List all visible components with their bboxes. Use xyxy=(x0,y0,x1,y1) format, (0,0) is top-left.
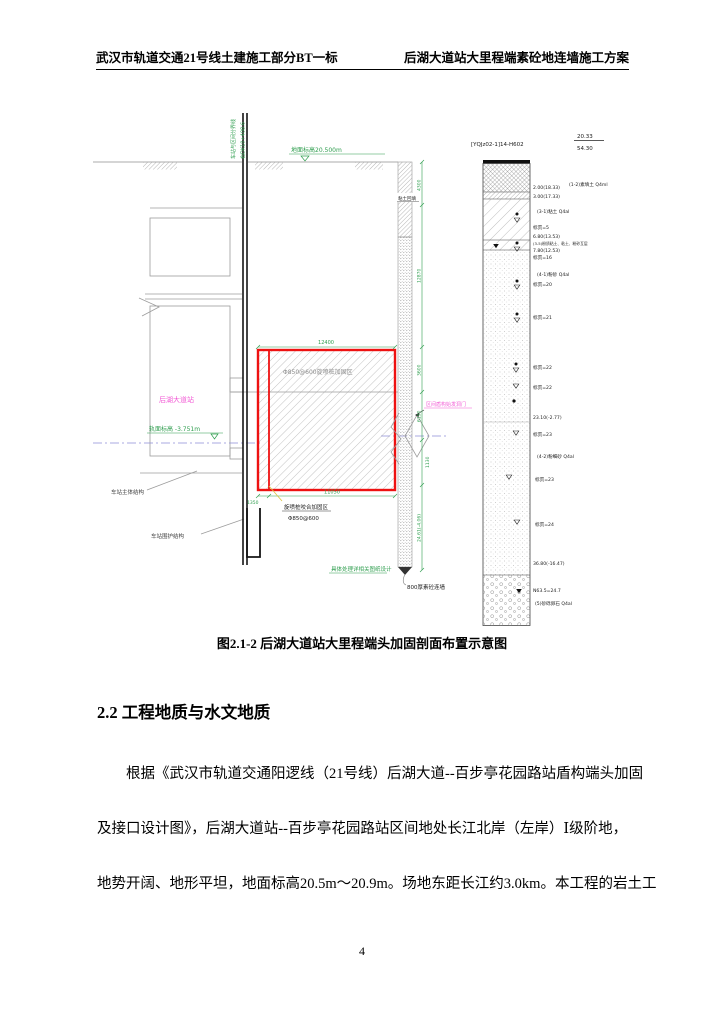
borehole-note: 2.00(18.33) xyxy=(533,185,560,191)
reinforcement-zone: Φ850@600旋喷桩加固区 xyxy=(258,350,395,490)
grout-note-line2: Φ850@600 xyxy=(288,516,319,522)
diaphragm-wall xyxy=(243,113,260,565)
borehole-note: 标贯=23 xyxy=(533,431,552,438)
dimension-top: 12400 xyxy=(256,340,397,349)
document-page: 武汉市轨道交通21号线土建施工部分BT一标 后湖大道站大里程端素砼地连墙施工方案 xyxy=(0,0,724,1024)
borehole-note: 标贯=5 xyxy=(533,224,549,231)
section-drawing: 车站与区间分界线 右DK10+408.6 地面标高20.500m 后湖大道站 轨… xyxy=(85,110,645,630)
grout-zone-label: Φ850@600旋喷桩加固区 xyxy=(283,368,353,376)
rail-elevation-group: 轨面标高 -3.751m xyxy=(147,425,223,439)
borehole-note: (5)砂砾卵石 Q4al xyxy=(535,600,572,607)
tunnel-portal-label: 区间盾构始发洞门 xyxy=(426,401,466,408)
borehole-annotations: 2.00(18.33) (1-2)素填土 Q4ml 3.00(17.33) (3… xyxy=(533,181,608,607)
borehole-note: (4-1)粉砂 Q4al xyxy=(537,271,569,278)
page-number: 4 xyxy=(0,944,724,959)
treatment-note-label: 具体处理详相关图纸设计 xyxy=(331,565,392,573)
station-retaining-structure-label: 车站围护结构 xyxy=(151,532,185,540)
plain-wall-label: 800厚素砼连墙 xyxy=(407,583,445,591)
borehole-note: 标贯=21 xyxy=(533,314,552,321)
treatment-note-group: 具体处理详相关图纸设计 xyxy=(329,565,392,573)
section-heading: 2.2 工程地质与水文地质 xyxy=(97,699,270,723)
figure-diagram: 车站与区间分界线 右DK10+408.6 地面标高20.500m 后湖大道站 轨… xyxy=(85,110,645,630)
dimension-bottom: 1350 11050 xyxy=(247,490,397,507)
borehole-note: 6.80(13.53) xyxy=(533,234,560,240)
borehole-total-depth: 54.30 xyxy=(577,146,593,152)
grout-note-group: 旋喷桩咬合加固区 Φ850@600 xyxy=(269,486,331,522)
borehole-note: 标贯=20 xyxy=(533,281,552,288)
borehole-note: 7.80(12.53) xyxy=(533,248,560,254)
grout-note-line1: 旋喷桩咬合加固区 xyxy=(284,503,329,511)
paragraph-line-1: 根据《武汉市轨道交通阳逻线（21号线）后湖大道--百步亭花园路站盾构端头加固 xyxy=(97,762,666,783)
dim-r5-value: 1130 xyxy=(425,456,431,468)
borehole-note: 标贯=23 xyxy=(535,476,554,483)
dim-r4-value: 6190 xyxy=(417,410,423,422)
dim-bottom-left-value: 1350 xyxy=(247,500,259,506)
figure-caption: 图2.1-2 后湖大道站大里程端头加固剖面布置示意图 xyxy=(0,633,724,652)
rail-elevation-label: 轨面标高 -3.751m xyxy=(149,425,200,433)
borehole-id: [YQJz02-1]14-H602 xyxy=(471,142,524,148)
borehole-note: 标贯=22 xyxy=(533,364,552,371)
borehole-top-elevation: 20.33 xyxy=(577,134,593,140)
paragraph-line-3: 地势开阔、地形平坦，地面标高20.5m～20.9m。场地东距长江约3.0km。本… xyxy=(97,872,637,893)
header-right-title: 后湖大道站大里程端素砼地连墙施工方案 xyxy=(404,47,629,66)
borehole-note: 36.80(-16.47) xyxy=(533,561,565,567)
dimension-chain-right: 4300 12870 3600 6190 1130 24.61(-4.06) xyxy=(417,160,432,572)
borehole-note: 标贯=16 xyxy=(533,254,552,261)
borehole-note: N63.5=24.7 xyxy=(533,588,561,594)
ground-elevation-group: 地面标高20.500m xyxy=(289,146,385,161)
boundary-line-label: 车站与区间分界线 xyxy=(230,119,237,159)
borehole-note: (1-2)素填土 Q4ml xyxy=(569,181,608,188)
plain-wall-label-group: 800厚素砼连墙 xyxy=(403,574,445,591)
dim-r1-value: 4300 xyxy=(417,179,423,191)
borehole-note: (3-1)粘土 Q4al xyxy=(537,208,569,215)
dim-r2-value: 12870 xyxy=(417,269,423,283)
dim-top-value: 12400 xyxy=(318,340,334,346)
header-left-title: 武汉市轨道交通21号线土建施工部分BT一标 xyxy=(96,47,338,66)
borehole-note: (3-5)粉质粘土、粘土、粉砂互层 xyxy=(533,241,588,246)
station-main-structure-label: 车站主体结构 xyxy=(111,488,145,496)
borehole-log: [YQJz02-1]14-H602 20.33 54.30 xyxy=(471,134,608,626)
tunnel-portal-group: 区间盾构始发洞门 xyxy=(415,401,472,417)
dim-r6-value: 24.61(-4.06) xyxy=(417,514,423,542)
dim-bottom-right-value: 11050 xyxy=(324,490,340,496)
dim-r3-value: 3600 xyxy=(417,364,423,376)
clay-backfill-label: 粘土回填 xyxy=(398,195,416,202)
ground-elevation-label: 地面标高20.500m xyxy=(291,146,342,154)
borehole-note: 3.00(17.33) xyxy=(533,194,560,200)
page-header: 武汉市轨道交通21号线土建施工部分BT一标 后湖大道站大里程端素砼地连墙施工方案 xyxy=(96,47,629,70)
borehole-note: (4-2)粉细砂 Q4al xyxy=(537,453,574,460)
ground-line xyxy=(93,162,398,170)
paragraph-line-2: 及接口设计图》，后湖大道站--百步亭花园路站区间地处长江北岸（左岸）Ⅰ级阶地， xyxy=(97,817,637,838)
chainage-label: 右DK10+408.6 xyxy=(240,122,247,159)
borehole-note: 标贯=24 xyxy=(535,521,554,528)
station-name-label: 后湖大道站 xyxy=(159,395,194,404)
borehole-note: 标贯=22 xyxy=(533,384,552,391)
borehole-note: 23.10(-2.77) xyxy=(533,415,562,421)
